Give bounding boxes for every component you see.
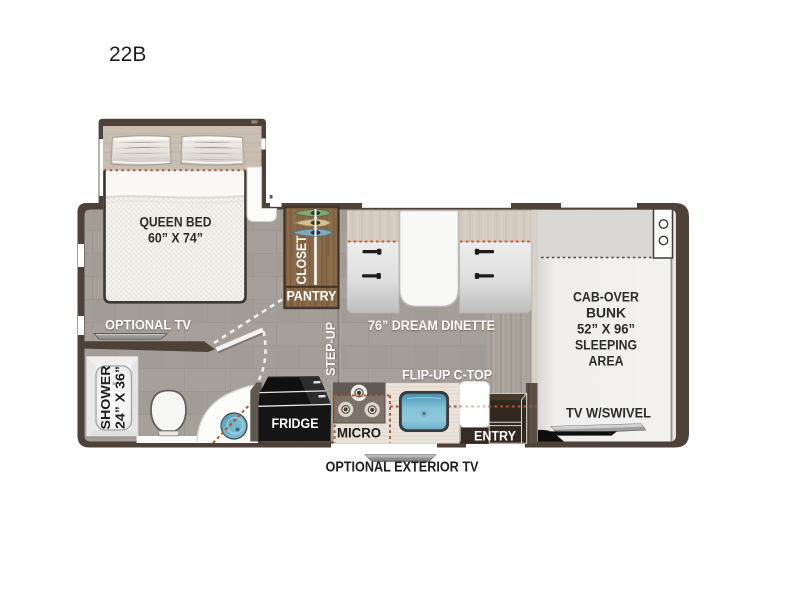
svg-text:PANTRY: PANTRY xyxy=(287,289,337,304)
svg-text:22B: 22B xyxy=(109,43,146,66)
svg-text:OPTIONAL EXTERIOR TV: OPTIONAL EXTERIOR TV xyxy=(326,459,479,476)
svg-text:BUNK: BUNK xyxy=(586,306,626,321)
svg-text:MICRO: MICRO xyxy=(337,426,381,441)
svg-text:CLOSET: CLOSET xyxy=(293,235,309,284)
svg-text:STEP-UP: STEP-UP xyxy=(323,322,338,376)
svg-text:CAB-OVER: CAB-OVER xyxy=(573,290,639,305)
svg-text:52” X 96”: 52” X 96” xyxy=(577,322,635,337)
svg-text:76” DREAM DINETTE: 76” DREAM DINETTE xyxy=(368,317,495,333)
svg-text:QUEEN BED: QUEEN BED xyxy=(140,215,212,230)
svg-text:SLEEPING: SLEEPING xyxy=(575,338,637,353)
svg-text:AREA: AREA xyxy=(589,354,624,369)
svg-text:FRIDGE: FRIDGE xyxy=(272,415,319,431)
svg-text:SHOWER: SHOWER xyxy=(98,365,113,430)
svg-text:OPTIONAL TV: OPTIONAL TV xyxy=(105,318,191,333)
svg-text:FLIP-UP C-TOP: FLIP-UP C-TOP xyxy=(402,368,492,383)
svg-text:60” X 74”: 60” X 74” xyxy=(148,231,203,246)
svg-text:ENTRY: ENTRY xyxy=(474,429,516,444)
svg-text:TV W/SWIVEL: TV W/SWIVEL xyxy=(566,406,651,421)
svg-text:24” X 36”: 24” X 36” xyxy=(113,366,128,429)
